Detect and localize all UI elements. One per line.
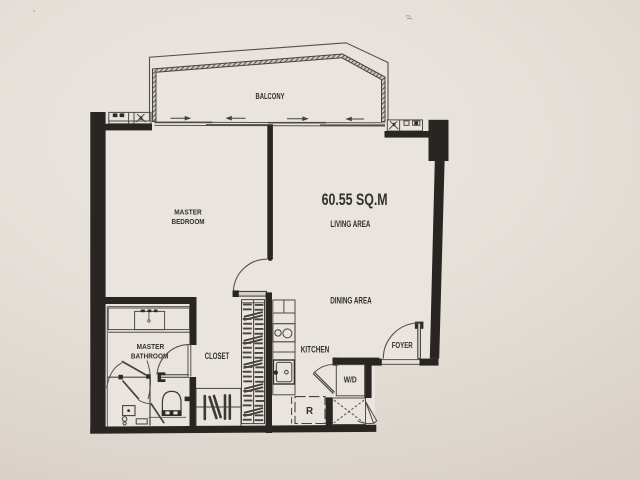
svg-text:DINING AREA: DINING AREA [330,294,372,305]
svg-text:BEDROOM: BEDROOM [172,217,205,226]
svg-text:BALCONY: BALCONY [256,92,285,101]
svg-text:MASTER: MASTER [174,208,202,217]
svg-text:LIVING AREA: LIVING AREA [330,219,370,229]
svg-text:R: R [306,406,313,417]
svg-text:60.55 SQ.M: 60.55 SQ.M [322,191,388,209]
svg-text:W/D: W/D [344,375,357,385]
svg-text:CLOSET: CLOSET [205,351,230,361]
svg-text:KITCHEN: KITCHEN [301,344,330,354]
svg-text:FOYER: FOYER [392,340,414,350]
svg-text:MASTER: MASTER [137,342,165,351]
